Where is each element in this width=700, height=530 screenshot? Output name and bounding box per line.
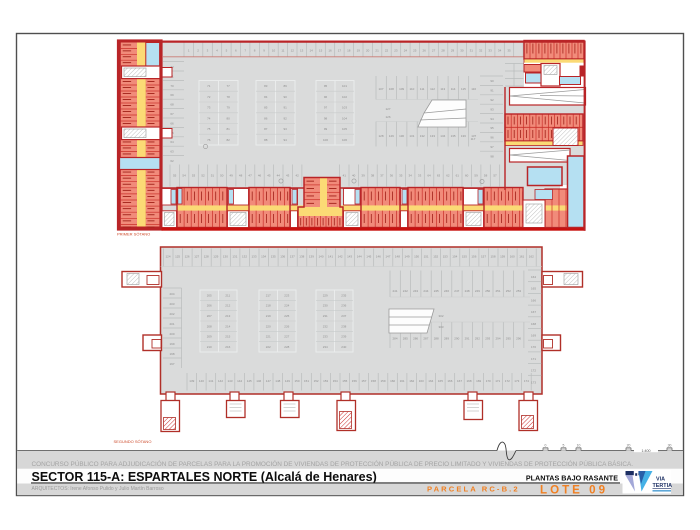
svg-text:128: 128 [378, 134, 383, 138]
svg-text:LOTE 09: LOTE 09 [540, 484, 608, 497]
svg-text:58: 58 [484, 174, 488, 178]
svg-text:99: 99 [324, 127, 328, 131]
svg-text:75: 75 [207, 127, 211, 131]
svg-text:53: 53 [192, 174, 196, 178]
svg-text:245: 245 [434, 289, 439, 293]
svg-text:45: 45 [267, 174, 271, 178]
svg-text:30: 30 [668, 444, 672, 448]
svg-text:167: 167 [457, 379, 462, 383]
svg-text:31: 31 [470, 49, 474, 53]
svg-text:44: 44 [277, 174, 281, 178]
svg-text:76: 76 [207, 138, 211, 142]
svg-text:132: 132 [242, 255, 247, 259]
svg-text:103: 103 [342, 106, 347, 110]
svg-text:252: 252 [506, 289, 511, 293]
svg-text:112: 112 [430, 87, 435, 91]
svg-text:133: 133 [251, 255, 256, 259]
svg-text:73: 73 [207, 106, 211, 110]
svg-text:243: 243 [413, 289, 418, 293]
svg-text:151: 151 [304, 379, 309, 383]
svg-text:162: 162 [409, 379, 414, 383]
svg-text:134: 134 [440, 134, 445, 138]
svg-text:17: 17 [338, 49, 342, 53]
svg-text:142: 142 [338, 255, 343, 259]
svg-text:133: 133 [430, 134, 435, 138]
svg-text:154: 154 [452, 255, 457, 259]
svg-text:34: 34 [498, 49, 502, 53]
svg-text:147: 147 [385, 255, 390, 259]
svg-text:127: 127 [194, 255, 199, 259]
svg-text:207: 207 [207, 314, 212, 318]
svg-text:168: 168 [531, 322, 536, 326]
svg-text:140: 140 [199, 379, 204, 383]
svg-text:111: 111 [420, 87, 425, 91]
svg-text:215: 215 [225, 335, 230, 339]
svg-text:224: 224 [284, 304, 289, 308]
svg-text:295: 295 [506, 337, 511, 341]
svg-text:ARQUITECTOS: Irene Afonso Puli: ARQUITECTOS: Irene Afonso Pulido y Julio… [32, 486, 164, 492]
svg-text:197: 197 [169, 362, 174, 366]
svg-text:201: 201 [169, 322, 174, 326]
svg-text:136: 136 [280, 255, 285, 259]
svg-text:142: 142 [218, 379, 223, 383]
svg-text:93: 93 [490, 107, 494, 111]
svg-text:131: 131 [409, 134, 414, 138]
svg-text:157: 157 [481, 255, 486, 259]
svg-text:38: 38 [371, 174, 375, 178]
svg-text:129: 129 [213, 255, 218, 259]
svg-text:10: 10 [577, 444, 581, 448]
svg-text:95: 95 [490, 126, 494, 130]
svg-text:90: 90 [284, 95, 288, 99]
svg-text:60: 60 [465, 174, 469, 178]
svg-text:303: 303 [438, 325, 443, 329]
svg-text:235: 235 [341, 293, 346, 297]
svg-text:91: 91 [490, 89, 494, 93]
svg-text:294: 294 [495, 337, 500, 341]
svg-text:23: 23 [394, 49, 398, 53]
svg-text:135: 135 [271, 255, 276, 259]
svg-text:145: 145 [247, 379, 252, 383]
svg-text:116: 116 [471, 87, 476, 91]
svg-text:82: 82 [227, 138, 231, 142]
svg-text:210: 210 [207, 345, 212, 349]
svg-text:165: 165 [438, 379, 443, 383]
svg-text:64: 64 [170, 140, 174, 144]
svg-text:80: 80 [227, 116, 231, 120]
svg-text:206: 206 [207, 304, 212, 308]
svg-text:SEGUNDO SÓTANO: SEGUNDO SÓTANO [114, 439, 152, 444]
svg-text:214: 214 [225, 324, 230, 328]
svg-text:217: 217 [266, 293, 271, 297]
svg-text:30: 30 [460, 49, 464, 53]
svg-text:152: 152 [433, 255, 438, 259]
svg-text:202: 202 [169, 312, 174, 316]
svg-text:144: 144 [357, 255, 362, 259]
svg-text:42: 42 [296, 174, 300, 178]
svg-text:241: 241 [392, 289, 397, 293]
svg-text:SECTOR 115-A: ESPARTALES NORTE: SECTOR 115-A: ESPARTALES NORTE (Alcalá d… [32, 470, 377, 484]
svg-text:115: 115 [461, 87, 466, 91]
svg-text:166: 166 [447, 379, 452, 383]
svg-text:173: 173 [531, 380, 536, 384]
svg-text:248: 248 [465, 289, 470, 293]
svg-text:72: 72 [207, 95, 211, 99]
svg-text:134: 134 [261, 255, 266, 259]
svg-text:231: 231 [323, 314, 328, 318]
svg-text:32: 32 [479, 49, 483, 53]
svg-text:135: 135 [451, 134, 456, 138]
svg-text:52: 52 [201, 174, 205, 178]
svg-text:232: 232 [323, 324, 328, 328]
svg-text:147: 147 [266, 379, 271, 383]
svg-text:125: 125 [175, 255, 180, 259]
svg-text:237: 237 [341, 314, 346, 318]
svg-text:139: 139 [309, 255, 314, 259]
svg-text:150: 150 [294, 379, 299, 383]
svg-text:91: 91 [284, 106, 288, 110]
svg-text:132: 132 [420, 134, 425, 138]
svg-text:96: 96 [490, 136, 494, 140]
svg-text:114: 114 [451, 87, 456, 91]
svg-text:162: 162 [529, 255, 534, 259]
svg-text:5: 5 [563, 444, 565, 448]
svg-text:141: 141 [328, 255, 333, 259]
svg-text:292: 292 [475, 337, 480, 341]
svg-text:77: 77 [227, 84, 231, 88]
svg-text:165: 165 [531, 287, 536, 291]
svg-text:94: 94 [490, 117, 494, 121]
svg-text:28: 28 [441, 49, 445, 53]
svg-text:289: 289 [444, 337, 449, 341]
svg-text:CONCURSO PÚBLICO PARA ADJUDICA: CONCURSO PÚBLICO PARA ADJUDICACIÓN DE PA… [32, 459, 634, 468]
svg-text:144: 144 [237, 379, 242, 383]
svg-text:108: 108 [389, 87, 394, 91]
svg-text:131: 131 [232, 255, 237, 259]
svg-text:48: 48 [239, 174, 243, 178]
svg-text:205: 205 [207, 293, 212, 297]
svg-text:110: 110 [410, 87, 415, 91]
svg-text:158: 158 [490, 255, 495, 259]
svg-text:21: 21 [375, 49, 379, 53]
svg-text:109: 109 [399, 87, 404, 91]
svg-text:41: 41 [343, 174, 347, 178]
svg-text:153: 153 [323, 379, 328, 383]
svg-text:211: 211 [225, 293, 230, 297]
svg-text:242: 242 [403, 289, 408, 293]
svg-text:155: 155 [342, 379, 347, 383]
svg-text:168: 168 [466, 379, 471, 383]
svg-text:VIA: VIA [656, 477, 665, 483]
svg-text:33: 33 [418, 174, 422, 178]
svg-text:143: 143 [347, 255, 352, 259]
svg-text:PARCELA RC-B.2: PARCELA RC-B.2 [427, 485, 520, 494]
svg-text:25: 25 [413, 49, 417, 53]
svg-text:29: 29 [451, 49, 455, 53]
svg-text:209: 209 [207, 335, 212, 339]
svg-text:92: 92 [490, 98, 494, 102]
svg-text:156: 156 [471, 255, 476, 259]
svg-text:10: 10 [272, 49, 276, 53]
svg-text:64: 64 [427, 174, 431, 178]
svg-text:78: 78 [227, 95, 231, 99]
svg-text:59: 59 [474, 174, 478, 178]
svg-text:170: 170 [486, 379, 491, 383]
svg-text:86: 86 [264, 116, 268, 120]
svg-text:163: 163 [419, 379, 424, 383]
svg-text:126: 126 [385, 115, 390, 119]
svg-text:68: 68 [170, 103, 174, 107]
svg-text:127: 127 [385, 107, 390, 111]
svg-text:39: 39 [361, 174, 365, 178]
svg-text:159: 159 [500, 255, 505, 259]
svg-text:129: 129 [389, 134, 394, 138]
svg-text:221: 221 [266, 335, 271, 339]
svg-text:151: 151 [424, 255, 429, 259]
svg-text:286: 286 [413, 337, 418, 341]
svg-text:290: 290 [454, 337, 459, 341]
svg-text:164: 164 [428, 379, 433, 383]
svg-text:105: 105 [342, 127, 347, 131]
svg-text:288: 288 [434, 337, 439, 341]
svg-text:27: 27 [432, 49, 436, 53]
svg-text:87: 87 [264, 127, 268, 131]
svg-text:117: 117 [471, 137, 476, 141]
svg-text:74: 74 [207, 116, 211, 120]
svg-text:143: 143 [227, 379, 232, 383]
svg-text:145: 145 [366, 255, 371, 259]
svg-text:171: 171 [495, 379, 500, 383]
svg-text:43: 43 [286, 174, 290, 178]
svg-text:251: 251 [495, 289, 500, 293]
svg-text:172: 172 [505, 379, 510, 383]
svg-text:226: 226 [284, 324, 289, 328]
svg-text:239: 239 [341, 335, 346, 339]
svg-text:97: 97 [490, 145, 494, 149]
svg-text:154: 154 [333, 379, 338, 383]
svg-text:20: 20 [627, 444, 631, 448]
svg-text:216: 216 [225, 345, 230, 349]
svg-text:220: 220 [266, 324, 271, 328]
svg-text:244: 244 [423, 289, 428, 293]
svg-text:124: 124 [165, 255, 170, 259]
svg-text:302: 302 [438, 314, 443, 318]
svg-text:85: 85 [264, 106, 268, 110]
svg-text:54: 54 [182, 174, 186, 178]
svg-text:170: 170 [531, 345, 536, 349]
svg-text:138: 138 [299, 255, 304, 259]
svg-text:167: 167 [531, 310, 536, 314]
svg-text:146: 146 [376, 255, 381, 259]
svg-text:51: 51 [211, 174, 215, 178]
svg-text:100: 100 [323, 138, 328, 142]
svg-text:213: 213 [225, 314, 230, 318]
svg-text:84: 84 [264, 95, 268, 99]
svg-text:246: 246 [444, 289, 449, 293]
svg-text:104: 104 [342, 116, 347, 120]
svg-text:89: 89 [284, 84, 288, 88]
svg-text:159: 159 [380, 379, 385, 383]
svg-text:101: 101 [342, 84, 347, 88]
svg-text:57: 57 [493, 174, 497, 178]
svg-text:137: 137 [290, 255, 295, 259]
svg-text:47: 47 [248, 174, 252, 178]
svg-text:18: 18 [347, 49, 351, 53]
svg-text:107: 107 [378, 87, 383, 91]
svg-text:94: 94 [284, 138, 288, 142]
svg-text:106: 106 [342, 138, 347, 142]
svg-text:287: 287 [423, 337, 428, 341]
svg-text:160: 160 [390, 379, 395, 383]
svg-text:161: 161 [519, 255, 524, 259]
svg-text:149: 149 [285, 379, 290, 383]
svg-text:293: 293 [485, 337, 490, 341]
svg-text:225: 225 [284, 314, 289, 318]
svg-text:249: 249 [475, 289, 480, 293]
svg-text:240: 240 [341, 345, 346, 349]
svg-text:50: 50 [220, 174, 224, 178]
svg-text:63: 63 [437, 174, 441, 178]
svg-text:130: 130 [223, 255, 228, 259]
svg-text:93: 93 [284, 127, 288, 131]
svg-text:158: 158 [371, 379, 376, 383]
svg-text:173: 173 [514, 379, 519, 383]
svg-text:199: 199 [169, 342, 174, 346]
svg-text:55: 55 [173, 174, 177, 178]
svg-text:161: 161 [400, 379, 405, 383]
svg-text:153: 153 [443, 255, 448, 259]
svg-text:69: 69 [170, 93, 174, 97]
svg-text:208: 208 [207, 324, 212, 328]
svg-text:236: 236 [341, 304, 346, 308]
svg-text:171: 171 [531, 357, 536, 361]
svg-text:229: 229 [323, 293, 328, 297]
svg-text:96: 96 [324, 95, 328, 99]
svg-text:291: 291 [465, 337, 470, 341]
svg-text:222: 222 [266, 345, 271, 349]
svg-text:12: 12 [291, 49, 295, 53]
svg-text:227: 227 [284, 335, 289, 339]
svg-text:160: 160 [510, 255, 515, 259]
svg-text:223: 223 [284, 293, 289, 297]
svg-text:61: 61 [456, 174, 460, 178]
svg-text:166: 166 [531, 298, 536, 302]
svg-text:67: 67 [170, 112, 174, 116]
svg-text:97: 97 [324, 106, 328, 110]
svg-text:19: 19 [357, 49, 361, 53]
svg-text:PLANTAS BAJO RASANTE: PLANTAS BAJO RASANTE [526, 474, 618, 483]
svg-text:62: 62 [170, 159, 174, 163]
svg-text:49: 49 [230, 174, 234, 178]
svg-text:11: 11 [281, 49, 284, 53]
svg-text:169: 169 [476, 379, 481, 383]
svg-text:PRIMER SÓTANO: PRIMER SÓTANO [117, 232, 150, 237]
svg-text:113: 113 [440, 87, 445, 91]
svg-text:234: 234 [323, 345, 328, 349]
svg-text:14: 14 [310, 49, 314, 53]
svg-text:66: 66 [170, 121, 174, 125]
svg-text:148: 148 [395, 255, 400, 259]
svg-text:139: 139 [189, 379, 194, 383]
svg-text:140: 140 [318, 255, 323, 259]
svg-text:247: 247 [454, 289, 459, 293]
svg-text:228: 228 [284, 345, 289, 349]
svg-text:36: 36 [390, 174, 394, 178]
svg-text:230: 230 [323, 304, 328, 308]
svg-text:22: 22 [385, 49, 389, 53]
svg-text:33: 33 [488, 49, 492, 53]
svg-text:13: 13 [300, 49, 304, 53]
svg-text:126: 126 [185, 255, 190, 259]
svg-text:218: 218 [266, 304, 271, 308]
svg-text:155: 155 [462, 255, 467, 259]
svg-text:83: 83 [264, 84, 268, 88]
svg-text:174: 174 [524, 379, 529, 383]
svg-text:130: 130 [399, 134, 404, 138]
svg-text:200: 200 [169, 332, 174, 336]
svg-text:90: 90 [490, 79, 494, 83]
svg-text:212: 212 [225, 304, 230, 308]
svg-text:0: 0 [545, 444, 547, 448]
svg-text:98: 98 [324, 116, 328, 120]
svg-text:88: 88 [264, 138, 268, 142]
svg-text:296: 296 [516, 337, 521, 341]
svg-text:46: 46 [258, 174, 262, 178]
svg-text:98: 98 [490, 154, 494, 158]
svg-text:92: 92 [284, 116, 288, 120]
svg-text:20: 20 [366, 49, 370, 53]
svg-text:24: 24 [404, 49, 408, 53]
svg-text:157: 157 [361, 379, 366, 383]
svg-text:253: 253 [516, 289, 521, 293]
svg-text:164: 164 [531, 275, 536, 279]
svg-text:63: 63 [170, 150, 174, 154]
svg-text:128: 128 [204, 255, 209, 259]
svg-text:81: 81 [227, 127, 231, 131]
svg-text:203: 203 [169, 302, 174, 306]
svg-text:219: 219 [266, 314, 271, 318]
svg-text:152: 152 [314, 379, 319, 383]
svg-text:146: 146 [256, 379, 261, 383]
svg-text:150: 150 [414, 255, 419, 259]
svg-text:238: 238 [341, 324, 346, 328]
svg-text:156: 156 [352, 379, 357, 383]
svg-text:71: 71 [207, 84, 211, 88]
svg-text:149: 149 [404, 255, 409, 259]
svg-text:136: 136 [461, 134, 466, 138]
svg-text:35: 35 [399, 174, 403, 178]
svg-text:285: 285 [403, 337, 408, 341]
svg-text:233: 233 [323, 335, 328, 339]
svg-text:16: 16 [328, 49, 332, 53]
svg-text:15: 15 [319, 49, 323, 53]
svg-text:250: 250 [485, 289, 490, 293]
svg-text:198: 198 [169, 352, 174, 356]
svg-text:79: 79 [227, 106, 231, 110]
svg-text:70: 70 [170, 84, 174, 88]
svg-text:284: 284 [392, 337, 397, 341]
svg-text:204: 204 [169, 292, 174, 296]
svg-text:172: 172 [531, 369, 536, 373]
svg-text:95: 95 [324, 84, 328, 88]
svg-text:26: 26 [423, 49, 427, 53]
svg-text:40: 40 [352, 174, 356, 178]
svg-text:34: 34 [409, 174, 413, 178]
svg-text:1:400: 1:400 [642, 449, 651, 453]
svg-text:148: 148 [275, 379, 280, 383]
svg-text:102: 102 [342, 95, 347, 99]
svg-text:35: 35 [507, 49, 511, 53]
